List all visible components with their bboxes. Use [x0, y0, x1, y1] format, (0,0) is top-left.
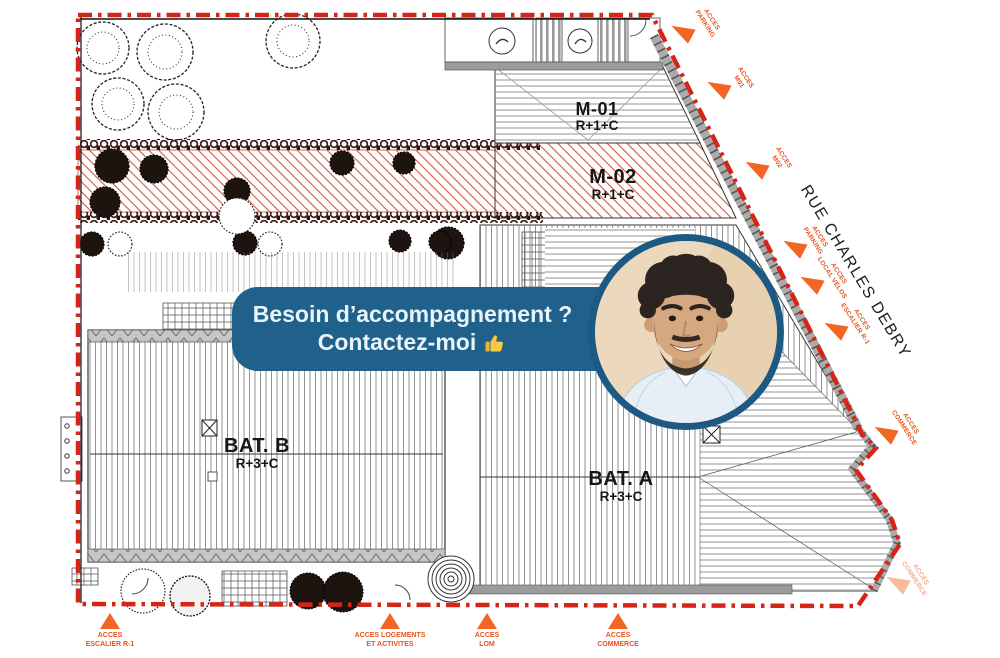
- access-label-commerce-bottom: ACCES COMMERCE: [597, 632, 639, 650]
- grass-area: [125, 252, 455, 292]
- banner-line-2: Contactez-moi: [318, 329, 507, 357]
- hatched-band: [78, 150, 495, 212]
- newsletter-image: M-01 R+1+C M-02 R+1+C BAT. B R+3+C BAT. …: [0, 0, 1000, 658]
- hedge-row-top: [78, 139, 540, 150]
- label-building-bat-b: BAT. B R+3+C: [224, 435, 290, 471]
- thumbs-up-icon: [483, 331, 507, 355]
- label-building-m01: M-01 R+1+C: [575, 99, 618, 133]
- access-label-lom: ACCES LOM: [475, 632, 500, 650]
- label-building-bat-a: BAT. A R+3+C: [588, 468, 653, 504]
- label-building-m02: M-02 R+1+C: [589, 166, 637, 202]
- hedge-row-bottom: [78, 212, 543, 223]
- advisor-portrait-illustration: [595, 241, 777, 423]
- advisor-photo: [588, 234, 784, 430]
- concentric-circles: [428, 556, 474, 602]
- contact-banner[interactable]: Besoin d’accompagnement ? Contactez-moi: [232, 287, 648, 371]
- banner-line-1: Besoin d’accompagnement ?: [253, 301, 573, 329]
- top-units: [445, 18, 663, 70]
- access-label-escalier-bottom: ACCES ESCALIER R-1: [86, 632, 135, 650]
- access-label-logements: ACCES LOGEMENTS ET ACTIVITES: [355, 632, 426, 650]
